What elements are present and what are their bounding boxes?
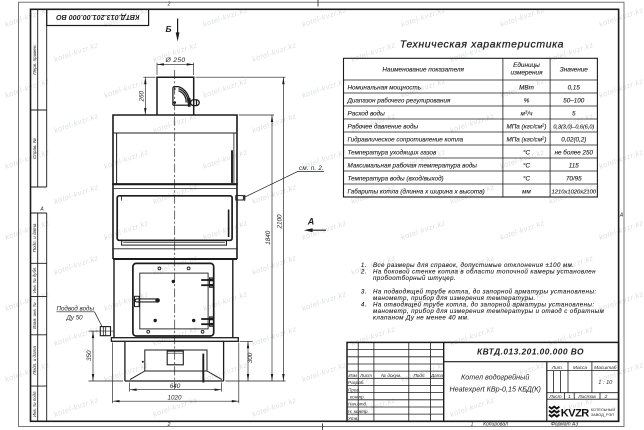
svg-text:Изм: Изм <box>348 373 357 378</box>
svg-text:Масса: Масса <box>573 365 588 371</box>
svg-text:А: А <box>307 217 315 227</box>
svg-text:2: 2 <box>604 394 608 400</box>
svg-text:Heatexpert КВр-0,15 КБД(К): Heatexpert КВр-0,15 КБД(К) <box>449 385 540 394</box>
svg-text:Лист: Лист <box>548 394 561 400</box>
svg-text:Гидравлическое сопротивление к: Гидравлическое сопротивление котла <box>348 135 464 143</box>
svg-text:Дата: Дата <box>430 373 444 378</box>
svg-text:5: 5 <box>572 110 576 117</box>
svg-text:Б: Б <box>165 24 171 34</box>
svg-text:Перв. примен.: Перв. примен. <box>32 44 37 75</box>
svg-text:%: % <box>524 97 530 104</box>
svg-text:МПа (кгс/см2): МПа (кгс/см2) <box>507 135 547 143</box>
svg-text:Значение: Значение <box>560 66 588 73</box>
svg-text:№ докум.: № докум. <box>381 373 401 378</box>
svg-text:0,3(3,0)–0,6(6,0): 0,3(3,0)–0,6(6,0) <box>553 124 594 130</box>
svg-text:КВТД.013.201.00.000 ВО: КВТД.013.201.00.000 ВО <box>477 347 584 357</box>
svg-text:Ø 250: Ø 250 <box>164 57 185 64</box>
svg-text:1210х1020х2100: 1210х1020х2100 <box>552 189 597 195</box>
svg-text:°С: °С <box>523 148 531 156</box>
svg-text:1 : 10: 1 : 10 <box>598 380 613 386</box>
svg-text:70/95: 70/95 <box>566 175 582 182</box>
svg-text:Температура воды (вход/выход): Температура воды (вход/выход) <box>348 174 444 182</box>
svg-text:Расход воды: Расход воды <box>348 109 386 117</box>
svg-text:КВТД.013.201.00.000 ВО: КВТД.013.201.00.000 ВО <box>56 13 140 22</box>
svg-text:Подп. и дата: Подп. и дата <box>32 223 37 252</box>
svg-text:Копировал: Копировал <box>483 422 508 428</box>
svg-text:0,02(0,2): 0,02(0,2) <box>561 136 586 143</box>
svg-text:м3/ч: м3/ч <box>521 109 533 117</box>
svg-text:Максимальная рабочая температу: Максимальная рабочая температура воды <box>348 161 478 169</box>
svg-text:Ду 50: Ду 50 <box>66 314 84 321</box>
svg-text:Листов: Листов <box>577 394 596 400</box>
svg-text:не более 250: не более 250 <box>555 148 594 156</box>
svg-text:0,15: 0,15 <box>568 84 581 91</box>
svg-text:Нач.отд.: Нач.отд. <box>348 402 367 407</box>
svg-text:2: 2 <box>167 422 171 428</box>
svg-text:Подп. и дата: Подп. и дата <box>32 346 37 375</box>
svg-text:2100: 2100 <box>276 214 283 230</box>
svg-text:Н. контр.: Н. контр. <box>348 409 369 414</box>
svg-text:Габариты котла (длинна х ширин: Габариты котла (длинна х ширина х высота… <box>348 187 485 195</box>
svg-text:1020: 1020 <box>167 395 182 402</box>
svg-text:Рабочее давление воды: Рабочее давление воды <box>348 122 419 130</box>
svg-text:115: 115 <box>569 162 580 169</box>
svg-text:клапаном Ду не менее 40 мм.: клапаном Ду не менее 40 мм. <box>373 314 470 321</box>
svg-text:Пров.: Пров. <box>348 387 360 392</box>
svg-text:°С: °С <box>523 174 531 182</box>
svg-text:4.: 4. <box>361 301 367 308</box>
svg-text:Техническая характеристика: Техническая характеристика <box>400 39 564 51</box>
svg-text:50–100: 50–100 <box>563 97 585 104</box>
svg-text:KVZR: KVZR <box>561 408 590 420</box>
svg-text:350: 350 <box>86 350 93 361</box>
svg-text:МВт: МВт <box>519 84 534 91</box>
svg-text:260: 260 <box>139 91 146 103</box>
svg-text:1840: 1840 <box>265 230 272 245</box>
svg-text:см. п. 2.: см. п. 2. <box>299 165 324 172</box>
svg-text:Лист: Лист <box>359 373 372 378</box>
svg-text:Лит.: Лит. <box>551 365 563 371</box>
svg-text:Инв. № подл.: Инв. № подл. <box>32 390 37 417</box>
svg-text:Котел водогрейный: Котел водогрейный <box>461 373 529 382</box>
svg-text:пробоотборный штуцер.: пробоотборный штуцер. <box>373 275 456 282</box>
svg-text:Масштаб: Масштаб <box>594 365 617 371</box>
svg-text:Подп.: Подп. <box>413 373 425 378</box>
svg-text:300: 300 <box>247 352 254 363</box>
svg-text:А: А <box>39 207 44 213</box>
svg-text:1: 1 <box>568 394 571 400</box>
svg-text:2.: 2. <box>360 269 367 276</box>
svg-text:Справ. №: Справ. № <box>32 138 37 159</box>
svg-text:Подвод воды: Подвод воды <box>57 305 95 312</box>
svg-text:измерения: измерения <box>511 69 544 76</box>
svg-text:3.: 3. <box>361 288 367 295</box>
svg-text:Утв.: Утв. <box>348 416 358 421</box>
svg-text:°С: °С <box>523 161 531 169</box>
svg-text:А: А <box>619 213 624 219</box>
svg-text:Инв. № дубл.: Инв. № дубл. <box>32 267 37 293</box>
svg-text:МПа (кгс/см2): МПа (кгс/см2) <box>507 122 547 130</box>
svg-text:Наименование показателя: Наименование показателя <box>382 66 464 73</box>
svg-text:2: 2 <box>167 2 171 8</box>
svg-text:640: 640 <box>170 383 181 390</box>
svg-text:Формат А3: Формат А3 <box>551 422 579 428</box>
svg-text:контр.: контр. <box>350 395 365 400</box>
svg-text:ЗАВОД_РЭП: ЗАВОД_РЭП <box>591 412 615 417</box>
svg-text:Взам. инв. №: Взам. инв. № <box>32 302 37 329</box>
svg-text:Единицы: Единицы <box>513 61 540 69</box>
svg-text:Температура уходящих газов: Температура уходящих газов <box>348 148 437 156</box>
svg-text:Разраб.: Разраб. <box>348 380 365 385</box>
svg-text:1: 1 <box>471 422 474 428</box>
svg-text:Диапазон рабочего регулировани: Диапазон рабочего регулирования <box>347 96 451 104</box>
svg-text:Номинальная мощность: Номинальная мощность <box>348 84 422 91</box>
svg-text:мм: мм <box>522 188 531 195</box>
